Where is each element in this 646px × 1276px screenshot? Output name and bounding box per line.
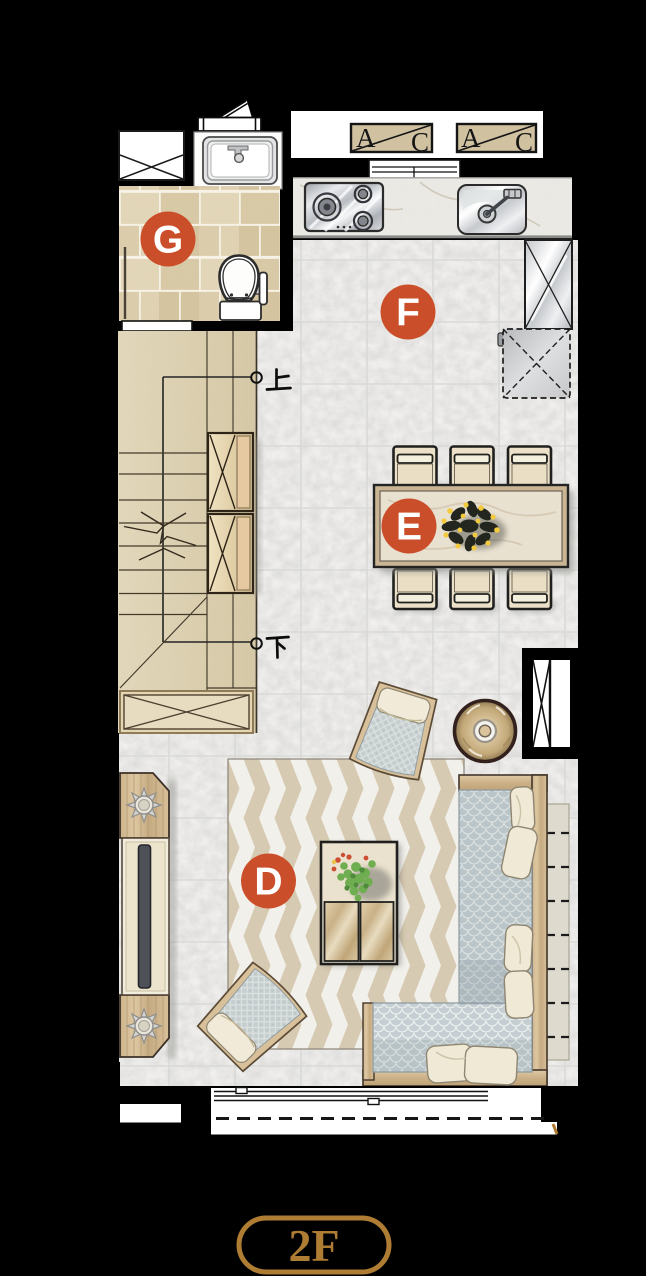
svg-text:D: D	[254, 861, 282, 904]
svg-text:A: A	[461, 123, 481, 153]
svg-text:G: G	[153, 219, 183, 262]
svg-text:C: C	[515, 127, 533, 157]
svg-text:E: E	[396, 506, 422, 549]
svg-text:F: F	[396, 292, 420, 335]
svg-text:2F: 2F	[288, 1220, 339, 1271]
svg-text:A: A	[356, 123, 376, 153]
svg-text:C: C	[411, 127, 429, 157]
